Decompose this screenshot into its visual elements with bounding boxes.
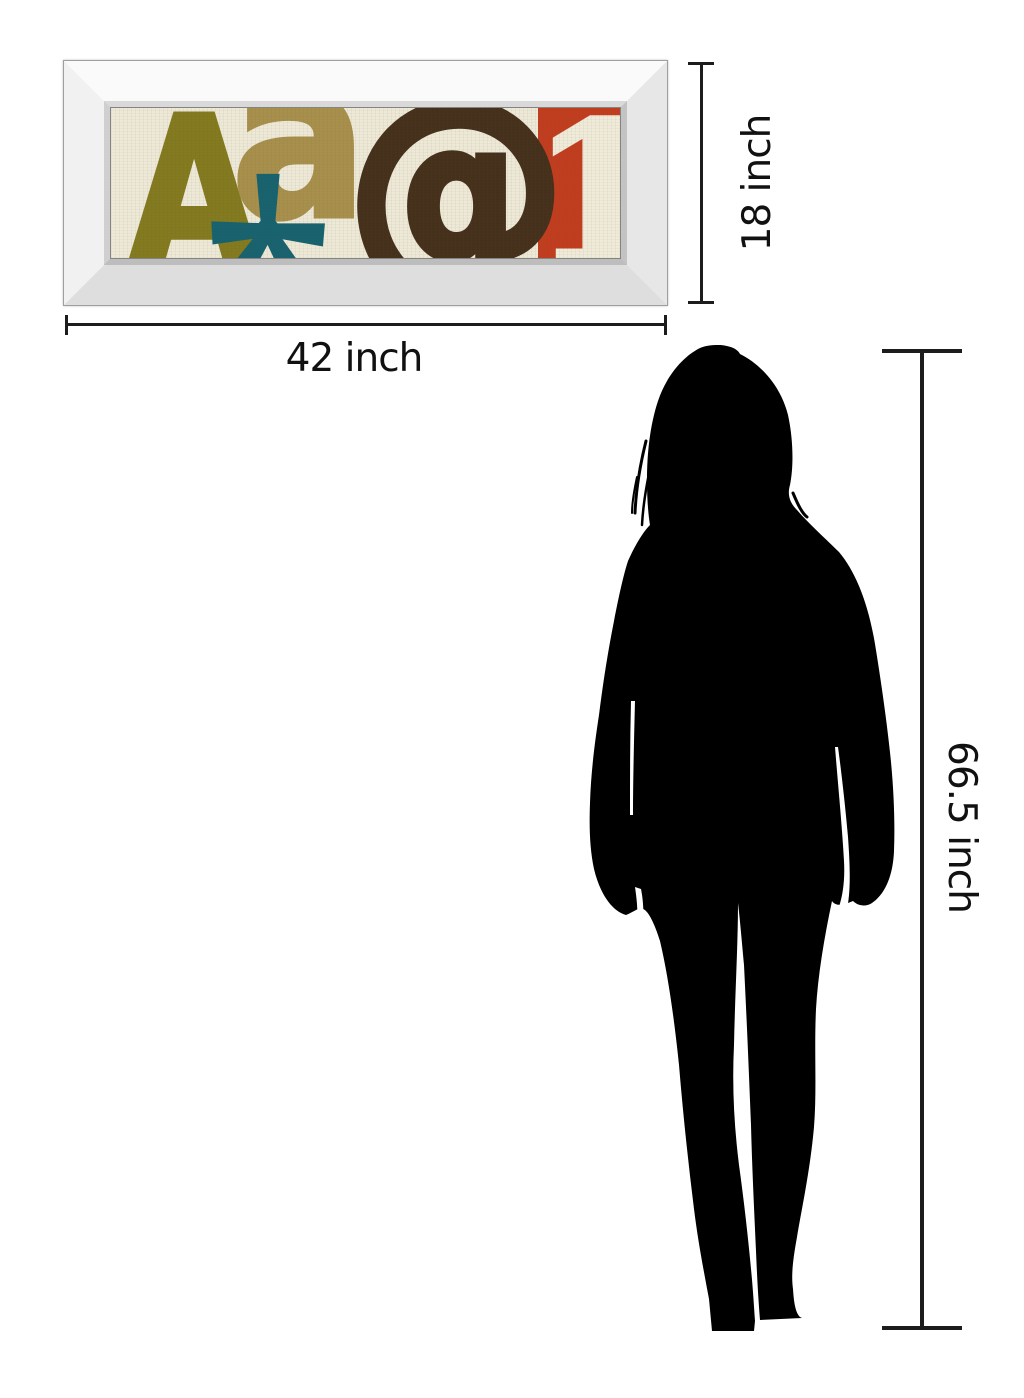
- artwork-asterisk-icon: [208, 170, 328, 258]
- artwork-at-sign: @: [347, 108, 566, 258]
- height-label: 18 inch: [735, 103, 779, 263]
- frame-face: A a 1 @: [64, 61, 667, 305]
- frame-bevel: A a 1 @: [104, 101, 627, 265]
- dimension-cap: [65, 315, 68, 335]
- width-label: 42 inch: [234, 336, 474, 382]
- woman-silhouette: [588, 345, 898, 1335]
- size-comparison-diagram: A a 1 @: [0, 0, 1024, 1398]
- dimension-cap: [664, 315, 667, 335]
- dimension-line-figure-height: [920, 349, 924, 1330]
- frame-liner: A a 1 @: [110, 107, 621, 259]
- dimension-line-width: [65, 323, 667, 326]
- figure-height-label: 66.5 inch: [938, 727, 984, 927]
- dimension-cap: [688, 62, 714, 65]
- framed-art: A a 1 @: [63, 60, 668, 306]
- dimension-line-height: [700, 62, 703, 304]
- dimension-cap: [688, 301, 714, 304]
- artwork-print: A a 1 @: [111, 108, 620, 258]
